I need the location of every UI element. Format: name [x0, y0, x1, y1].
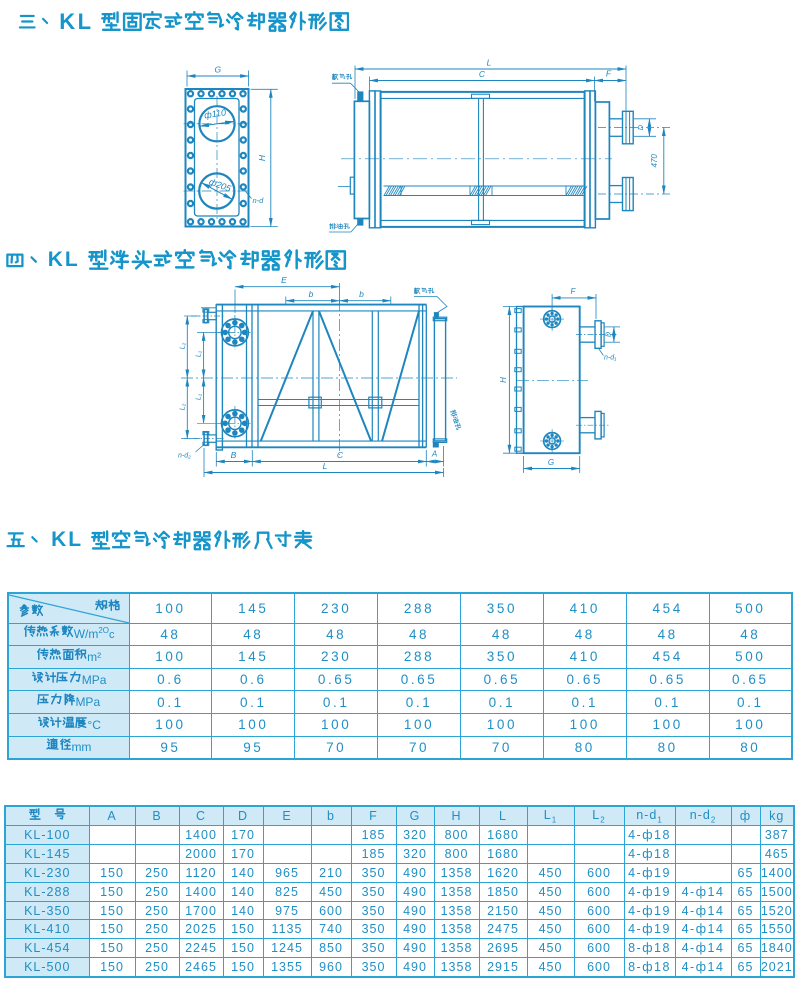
svg-text:G: G [214, 65, 221, 75]
svg-text:G: G [548, 458, 554, 467]
svg-text:470: 470 [650, 154, 659, 168]
svg-text:L₁: L₁ [196, 350, 203, 357]
svg-text:E: E [281, 275, 287, 285]
svg-text:B: B [231, 450, 237, 460]
svg-text:n-d₂: n-d₂ [178, 453, 191, 460]
svg-text:L₁: L₁ [196, 393, 203, 400]
svg-text:L: L [487, 58, 492, 68]
svg-text:b: b [309, 289, 314, 299]
svg-text:D: D [636, 124, 645, 130]
svg-text:A: A [431, 450, 437, 459]
svg-text:C: C [479, 69, 486, 79]
svg-text:F: F [571, 287, 577, 296]
svg-text:n-d: n-d [253, 196, 265, 205]
svg-text:n-d₁: n-d₁ [604, 355, 617, 362]
svg-text:L₂: L₂ [179, 403, 186, 410]
svg-text:H: H [257, 154, 267, 161]
svg-text:D: D [605, 332, 612, 337]
svg-text:H: H [499, 377, 508, 383]
svg-text:C: C [337, 450, 344, 460]
svg-text:L₂: L₂ [179, 342, 186, 349]
svg-text:F: F [606, 69, 612, 79]
svg-text:L: L [323, 461, 328, 471]
svg-text:b: b [359, 289, 364, 299]
svg-text:ф110: ф110 [204, 107, 227, 120]
